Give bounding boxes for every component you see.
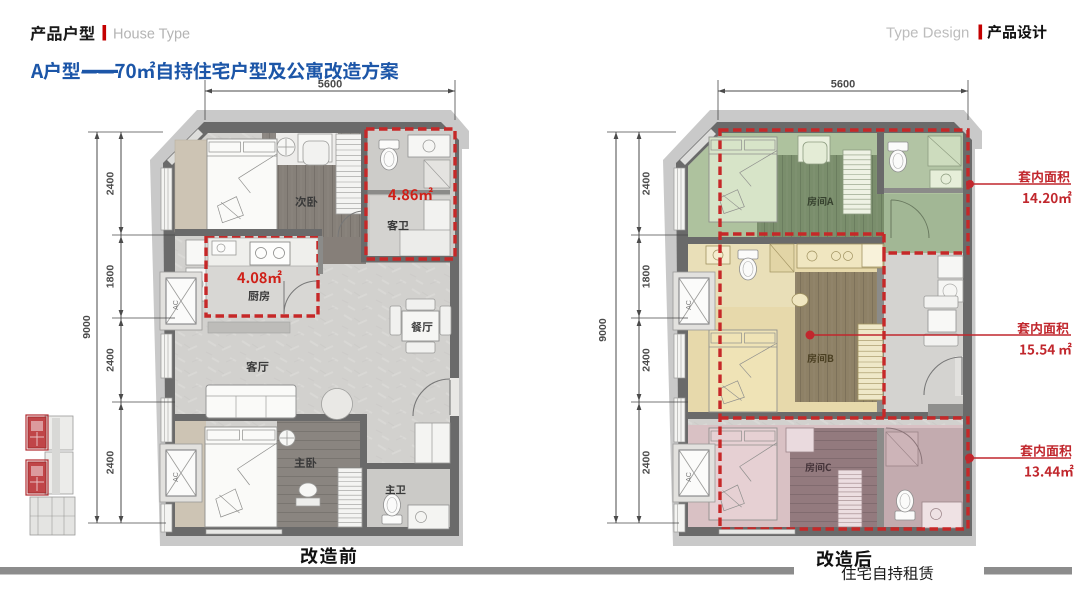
svg-text:2400: 2400 <box>105 172 117 196</box>
svg-text:AC: AC <box>686 300 693 310</box>
svg-text:Type Design: Type Design <box>886 25 969 42</box>
svg-text:9000: 9000 <box>81 315 93 339</box>
svg-text:5600: 5600 <box>831 79 855 91</box>
svg-text:House Type: House Type <box>113 27 190 43</box>
svg-text:9000: 9000 <box>597 318 609 342</box>
svg-text:AC: AC <box>686 472 693 482</box>
svg-text:2400: 2400 <box>105 348 117 372</box>
svg-text:2400: 2400 <box>105 451 117 475</box>
svg-text:AC: AC <box>173 472 180 482</box>
svg-text:2400: 2400 <box>641 348 653 372</box>
svg-text:1800: 1800 <box>641 265 653 289</box>
svg-text:2400: 2400 <box>641 451 653 475</box>
svg-text:1800: 1800 <box>105 265 117 289</box>
svg-text:AC: AC <box>173 300 180 310</box>
svg-text:2400: 2400 <box>641 172 653 196</box>
svg-text:5600: 5600 <box>318 79 342 91</box>
